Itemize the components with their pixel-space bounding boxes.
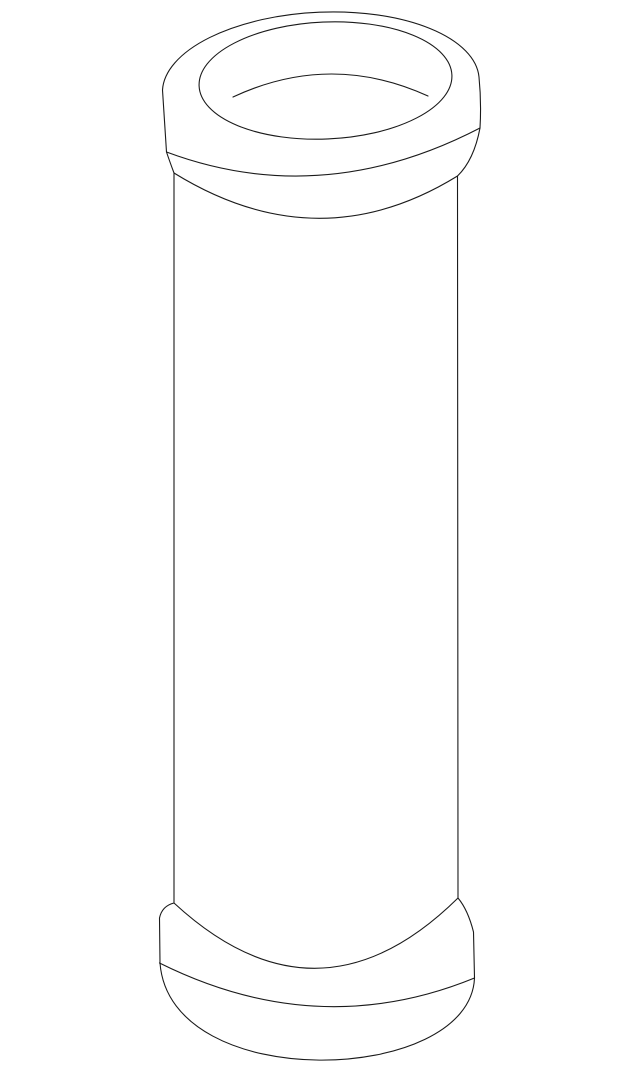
tube-line-group xyxy=(160,12,481,1060)
part-illustration-canvas xyxy=(0,0,640,1071)
flanged-tube-drawing xyxy=(0,0,640,1071)
tube-outer-silhouette xyxy=(160,12,481,1060)
